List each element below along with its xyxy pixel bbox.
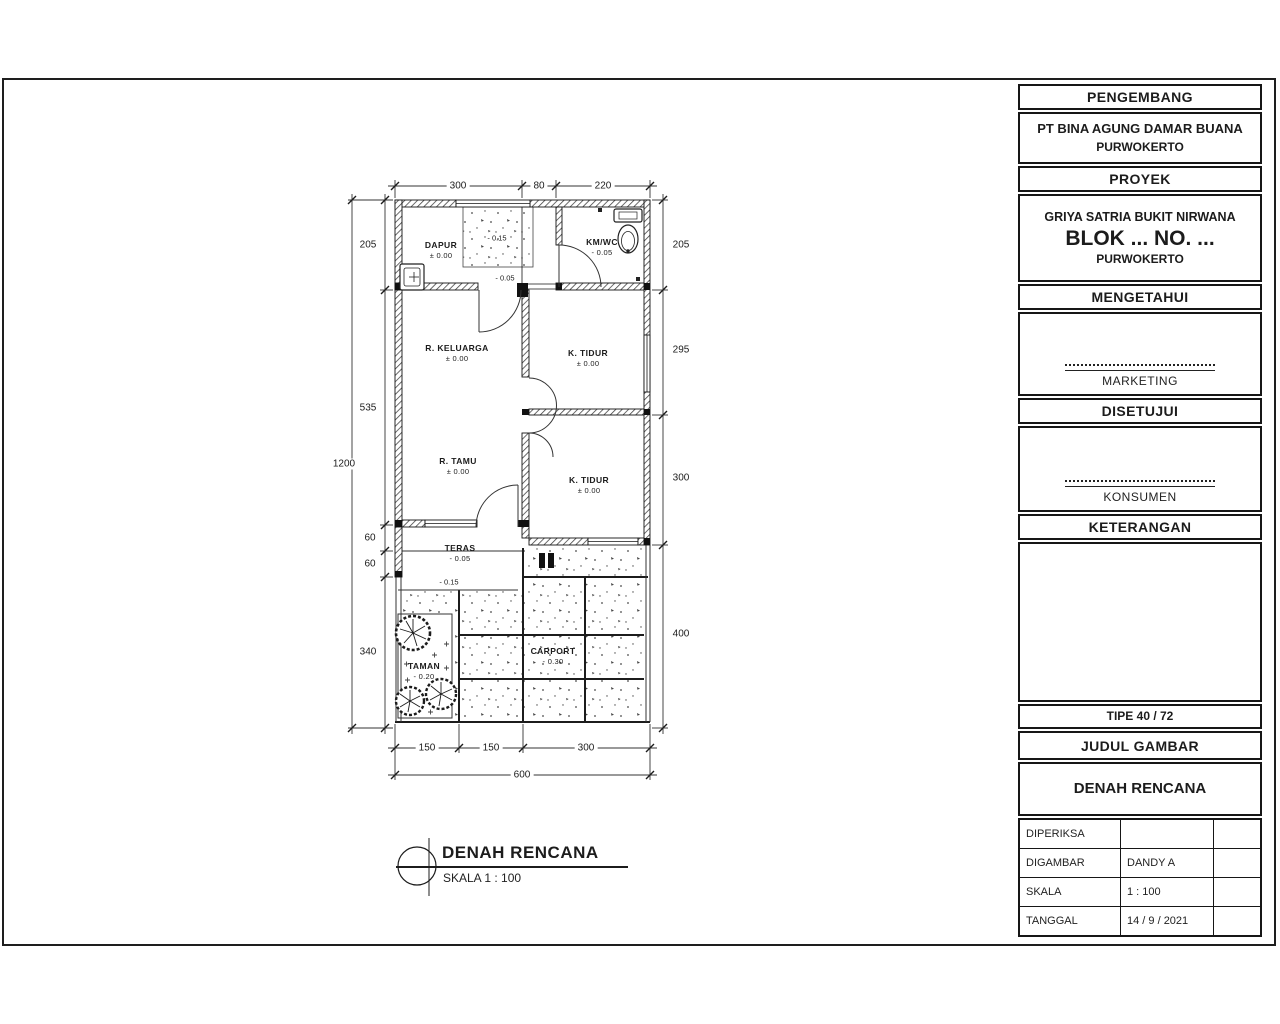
door-arc-entry — [476, 485, 518, 527]
dim-top-0: 300 — [447, 181, 470, 192]
titleblock-drawing-name: DENAH RENCANA — [1018, 762, 1262, 816]
dim-bottom-1: 150 — [480, 743, 503, 754]
dim-left-2: 60 — [361, 533, 378, 544]
table-label: DIGAMBAR — [1019, 849, 1121, 878]
dim-bottom-0: 150 — [416, 743, 439, 754]
title-block: PENGEMBANG PT BINA AGUNG DAMAR BUANA PUR… — [1018, 84, 1262, 937]
titleblock-header-judul: JUDUL GAMBAR — [1018, 731, 1262, 760]
door-arc-bedroom2 — [529, 433, 553, 457]
spot-level-wash: - 0.15 — [487, 234, 506, 243]
table-cell-empty — [1214, 907, 1262, 937]
table-row: SKALA 1 : 100 — [1019, 878, 1261, 907]
spot-level-step: - 0.15 — [439, 578, 458, 587]
dim-right-3: 400 — [670, 629, 693, 640]
table-row: DIPERIKSA — [1019, 819, 1261, 849]
titleblock-type: TIPE 40 / 72 — [1018, 704, 1262, 729]
titleblock-sign-konsumen: KONSUMEN — [1018, 426, 1262, 512]
dim-right-1: 295 — [670, 345, 693, 356]
table-cell-empty — [1214, 849, 1262, 878]
plan-scale: SKALA 1 : 100 — [443, 871, 521, 885]
dim-left-1: 535 — [357, 403, 380, 414]
table-label: DIPERIKSA — [1019, 819, 1121, 849]
table-cell-empty — [1214, 878, 1262, 907]
door-arc-kitchen — [479, 290, 521, 332]
spot-level-hall: - 0.05 — [495, 274, 514, 283]
titleblock-header-mengetahui: MENGETAHUI — [1018, 284, 1262, 310]
titleblock-info-table: DIPERIKSA DIGAMBAR DANDY A SKALA 1 : 100… — [1018, 818, 1262, 937]
dim-top-2: 220 — [592, 181, 615, 192]
dim-left-0: 205 — [357, 240, 380, 251]
room-label-tidur1: K. TIDUR ± 0.00 — [568, 348, 608, 368]
drawing-sheet: DAPUR ± 0.00 KM/WC - 0.05 R. KELUARGA ± … — [0, 0, 1280, 1024]
table-value: DANDY A — [1121, 849, 1214, 878]
titleblock-notes-empty — [1018, 542, 1262, 702]
plan-title: DENAH RENCANA — [442, 843, 599, 863]
room-label-tidur2: K. TIDUR ± 0.00 — [569, 475, 609, 495]
room-label-teras: TERAS - 0.05 — [445, 543, 476, 563]
room-label-keluarga: R. KELUARGA ± 0.00 — [425, 343, 488, 363]
titleblock-header-pengembang: PENGEMBANG — [1018, 84, 1262, 110]
table-value: 14 / 9 / 2021 — [1121, 907, 1214, 937]
table-cell-empty — [1214, 819, 1262, 849]
dim-bottom-total: 600 — [511, 770, 534, 781]
titleblock-header-disetujui: DISETUJUI — [1018, 398, 1262, 424]
dim-right-2: 300 — [670, 473, 693, 484]
tree-icon — [396, 687, 424, 715]
tree-icon — [426, 679, 456, 709]
room-label-kmwc: KM/WC - 0.05 — [586, 237, 618, 257]
dim-left-total: 1200 — [330, 459, 358, 470]
table-value: 1 : 100 — [1121, 878, 1214, 907]
titleblock-header-keterangan: KETERANGAN — [1018, 514, 1262, 540]
room-label-dapur: DAPUR ± 0.00 — [425, 240, 457, 260]
table-row: DIGAMBAR DANDY A — [1019, 849, 1261, 878]
titleblock-header-proyek: PROYEK — [1018, 166, 1262, 192]
toilet-icon — [614, 209, 642, 253]
floor-drain2-icon — [636, 277, 640, 281]
room-label-tamu: R. TAMU ± 0.00 — [439, 456, 477, 476]
dim-right-0: 205 — [670, 240, 693, 251]
table-value — [1121, 819, 1214, 849]
sink-icon — [400, 264, 424, 290]
dim-bottom-2: 300 — [575, 743, 598, 754]
dim-left-4: 340 — [357, 647, 380, 658]
table-label: TANGGAL — [1019, 907, 1121, 937]
table-label: SKALA — [1019, 878, 1121, 907]
signature-line — [1065, 480, 1215, 487]
table-row: TANGGAL 14 / 9 / 2021 — [1019, 907, 1261, 937]
signature-line — [1065, 364, 1215, 371]
dim-top-1: 80 — [530, 181, 547, 192]
room-label-taman: TAMAN - 0.20 — [408, 661, 440, 681]
room-label-carport: CARPORT - 0.30 — [531, 646, 576, 666]
door-arc-bedroom1 — [529, 378, 556, 433]
floor-drain-icon — [598, 208, 602, 212]
dim-left-3: 60 — [361, 559, 378, 570]
titleblock-developer: PT BINA AGUNG DAMAR BUANA PURWOKERTO — [1018, 112, 1262, 164]
titleblock-sign-marketing: MARKETING — [1018, 312, 1262, 396]
titleblock-project: GRIYA SATRIA BUKIT NIRWANA BLOK ... NO. … — [1018, 194, 1262, 282]
tree-icon — [396, 616, 430, 650]
